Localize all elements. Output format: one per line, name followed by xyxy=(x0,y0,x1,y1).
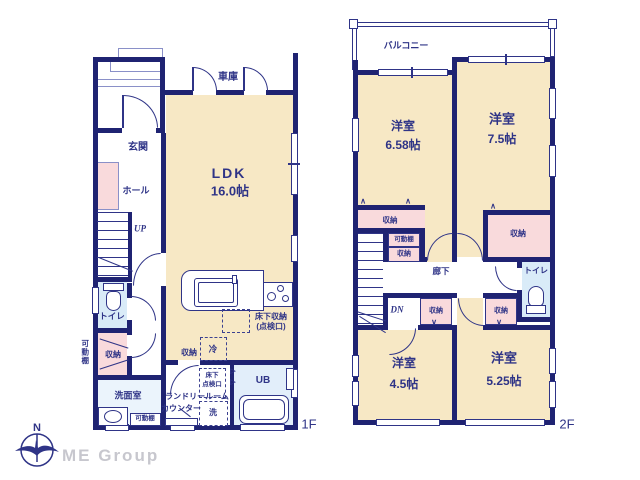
window xyxy=(549,145,556,177)
wall xyxy=(483,210,488,262)
window xyxy=(376,419,440,426)
compass-north-letter: N xyxy=(33,422,41,434)
label-underfloor-storage-2: (点検口) xyxy=(256,323,285,331)
label-storage-mid: 収納 xyxy=(397,251,411,258)
label-storage-left: 収納 xyxy=(105,351,121,359)
label-fridge: 冷 xyxy=(209,345,218,354)
wall xyxy=(160,90,193,95)
porch-line xyxy=(98,86,160,87)
compass-icon: N xyxy=(12,420,62,472)
wall xyxy=(353,60,358,70)
label-storage-kitchen: 収納 xyxy=(181,349,197,357)
wall xyxy=(420,233,425,257)
closet-door-mark: ∨ xyxy=(496,318,502,327)
label-laundry: ランドリールーム xyxy=(165,393,229,401)
stove-burner xyxy=(282,295,289,302)
label-balcony: バルコニー xyxy=(384,42,429,51)
window xyxy=(549,348,556,374)
wall xyxy=(483,325,555,330)
label-hall: ホール xyxy=(122,187,149,196)
window xyxy=(465,419,545,426)
label-unit-bath: UB xyxy=(256,376,270,386)
closet-door-mark: ∨ xyxy=(431,318,437,327)
window-tick xyxy=(288,163,300,165)
brand-text: ME Group xyxy=(62,446,159,466)
wall xyxy=(353,420,376,425)
window xyxy=(549,88,556,119)
window xyxy=(352,381,359,406)
wall xyxy=(439,420,466,425)
balcony-rail xyxy=(353,22,555,27)
ub-stand xyxy=(286,368,294,390)
stove-burner xyxy=(267,292,276,301)
label-counter: カウンター xyxy=(161,405,201,413)
label-washroom: 洗面室 xyxy=(114,392,141,401)
toilet-tank xyxy=(103,283,124,291)
window xyxy=(291,235,298,262)
closet-door-mark: ∧ xyxy=(360,197,366,206)
label-underfloor-storage-1: 床下収納 xyxy=(255,313,287,321)
label-dn: DN xyxy=(391,306,404,315)
folding-door-mark: ▷ xyxy=(230,367,235,375)
window xyxy=(352,355,359,377)
wall xyxy=(353,70,379,75)
label-room-nw: 洋室 xyxy=(391,120,415,132)
label-storage-se: 収納 xyxy=(494,308,508,315)
window xyxy=(92,287,99,314)
toilet-tank xyxy=(526,305,546,314)
wall xyxy=(517,317,555,322)
label-ldk: LDK xyxy=(212,166,247,180)
wall xyxy=(418,325,457,330)
wall xyxy=(452,57,457,233)
floor2-tag: 2F xyxy=(559,418,574,431)
washbasin-bowl xyxy=(104,410,122,423)
wall xyxy=(544,420,555,425)
wall xyxy=(93,128,122,133)
wall xyxy=(544,57,555,62)
label-storage-ne: 収納 xyxy=(510,230,526,238)
wall xyxy=(452,325,457,425)
stove-burner xyxy=(277,285,284,292)
door-arc xyxy=(133,253,161,286)
balcony-post xyxy=(548,19,557,29)
wall xyxy=(483,210,555,215)
porch-line xyxy=(98,79,160,80)
label-storage-sw: 収納 xyxy=(429,308,443,315)
label-underfloor-check-2: 点検口 xyxy=(202,382,222,389)
wall xyxy=(353,205,425,210)
label-up: UP xyxy=(134,225,146,234)
label-ldk-size: 16.0帖 xyxy=(211,185,249,198)
label-movable-shelf-2f: 可動棚 xyxy=(394,237,414,244)
label-room-se-size: 5.25帖 xyxy=(486,375,521,387)
label-toilet-1f: トイレ xyxy=(99,312,125,321)
label-room-sw: 洋室 xyxy=(392,357,416,369)
balcony-post xyxy=(349,19,358,29)
window-tick xyxy=(411,67,413,78)
label-room-ne: 洋室 xyxy=(489,113,515,126)
floor1-tag: 1F xyxy=(301,418,316,431)
wall xyxy=(161,360,178,365)
door-arc xyxy=(170,365,199,395)
window xyxy=(352,118,359,152)
door-arc xyxy=(131,333,156,358)
label-genkan: 玄関 xyxy=(128,143,148,153)
underfloor-storage-box xyxy=(222,309,250,333)
closet-door-mark: ∧ xyxy=(490,202,496,211)
laundry-counter xyxy=(165,418,198,426)
door-arc xyxy=(123,95,158,128)
label-room-se: 洋室 xyxy=(491,352,517,365)
floorplan-canvas: ▷ ▷ 車庫 LDK 16.0帖 玄関 ホール xyxy=(0,0,640,480)
window xyxy=(378,69,448,76)
wall xyxy=(517,262,522,268)
label-room-nw-size: 6.58帖 xyxy=(385,139,420,151)
kitchen-sink-basin xyxy=(198,282,234,303)
label-room-sw-size: 4.5帖 xyxy=(390,378,419,390)
wall xyxy=(161,133,166,253)
toilet-bowl xyxy=(528,286,544,307)
label-corridor: 廊下 xyxy=(432,267,449,276)
label-toilet-2f: トイレ xyxy=(524,267,548,275)
genkan-closet xyxy=(97,162,119,210)
closet-door-mark: ∧ xyxy=(405,197,411,206)
wall xyxy=(284,425,298,430)
label-garage: 車庫 xyxy=(218,73,238,83)
folding-door-mark: ▷ xyxy=(230,378,235,386)
window xyxy=(549,381,556,408)
door-arc xyxy=(495,266,517,291)
label-room-ne-size: 7.5帖 xyxy=(488,133,517,145)
label-washer: 洗 xyxy=(209,409,217,417)
label-storage-nw: 収納 xyxy=(383,216,398,224)
garage-door-arc xyxy=(193,67,217,91)
wall xyxy=(216,90,244,95)
label-movable-shelf-side: 可動棚 xyxy=(81,339,89,365)
window-tick xyxy=(505,54,507,65)
bathtub-inner xyxy=(243,399,285,420)
door-arc xyxy=(131,296,156,321)
label-underfloor-check-1: 床下 xyxy=(206,373,219,380)
window xyxy=(240,424,285,431)
garage-door-arc xyxy=(244,67,268,91)
toilet-bowl xyxy=(106,291,121,311)
label-movable-shelf-bottom: 可動棚 xyxy=(135,416,155,423)
wall xyxy=(93,57,165,62)
kitchen-faucet xyxy=(232,275,237,284)
wall xyxy=(160,57,165,133)
